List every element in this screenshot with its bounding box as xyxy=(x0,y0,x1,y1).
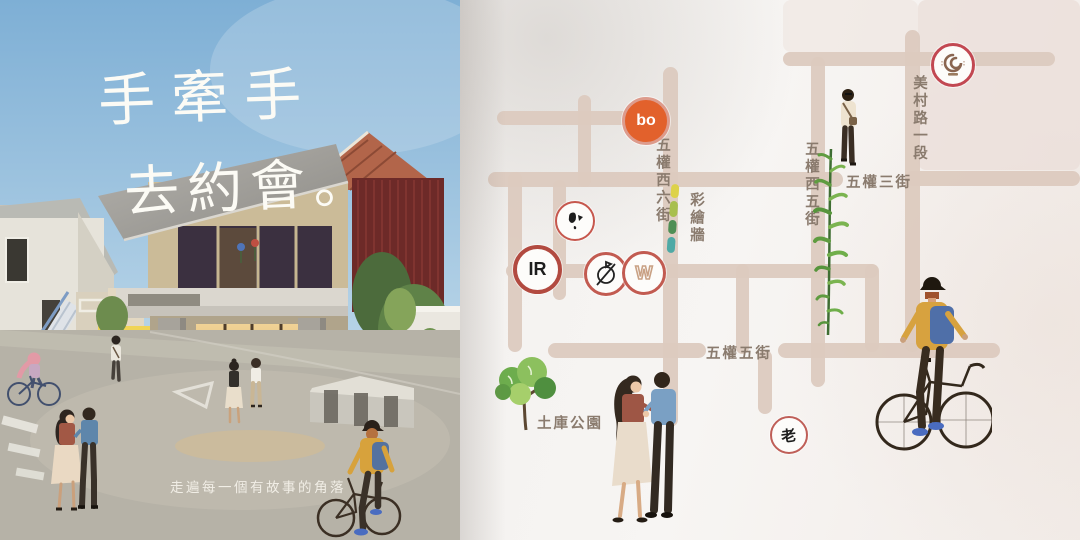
street-scene-illustration xyxy=(0,0,460,540)
label-wuquan-5th: 五權五街 xyxy=(706,342,772,363)
street-h-wuquan-5th-west xyxy=(548,343,706,358)
red-flower xyxy=(251,239,259,247)
wheel-logo xyxy=(592,260,620,288)
bo-logo: bo xyxy=(636,112,656,130)
map-cyclist xyxy=(874,274,992,458)
blue-flower xyxy=(237,243,245,251)
illustration-page: 手牽手 去約會。 走遍每一個有故事的角落 xyxy=(0,0,460,540)
hands-logo: W xyxy=(630,259,658,287)
fern-tree xyxy=(813,143,849,339)
map-tint-block xyxy=(918,0,1080,170)
svg-text:W: W xyxy=(636,263,653,283)
street-h-top-left xyxy=(497,111,642,125)
slogan-text: 走遍每一個有故事的角落 xyxy=(170,476,346,496)
park-tree xyxy=(490,354,558,432)
ir-logo: IR xyxy=(529,259,547,280)
stamp-bo-shop: bo xyxy=(622,97,670,145)
label-painted-wall: 彩繪牆 xyxy=(686,192,707,245)
street-v-center-short xyxy=(736,264,749,354)
bird-logo xyxy=(562,208,588,234)
stamp-swirl-shop xyxy=(931,43,975,87)
stamp-bird-shop xyxy=(555,201,595,241)
map-tint-block xyxy=(783,0,918,52)
stamp-lao-shop: 老 xyxy=(770,416,808,454)
stamp-hands-shop: W xyxy=(622,251,666,295)
street-h-wuquan-3rd-east xyxy=(905,171,1080,186)
label-wuquan-3rd: 五權三街 xyxy=(846,171,912,192)
poster-spread: 手牽手 去約會。 走遍每一個有故事的角落 五權西六街 xyxy=(0,0,1080,540)
lao-calligraphy-logo: 老 xyxy=(780,424,798,447)
map-page: 五權西六街 彩繪牆 五權西五街 五權三街 美村路一段 五權五街 土庫公園 bo … xyxy=(460,0,1080,540)
label-meicun-road: 美村路一段 xyxy=(909,75,930,163)
map-couple xyxy=(600,368,690,540)
street-v-stub-top xyxy=(578,95,591,187)
swirl-logo xyxy=(939,51,967,79)
stamp-ir-shop: IR xyxy=(513,245,562,294)
